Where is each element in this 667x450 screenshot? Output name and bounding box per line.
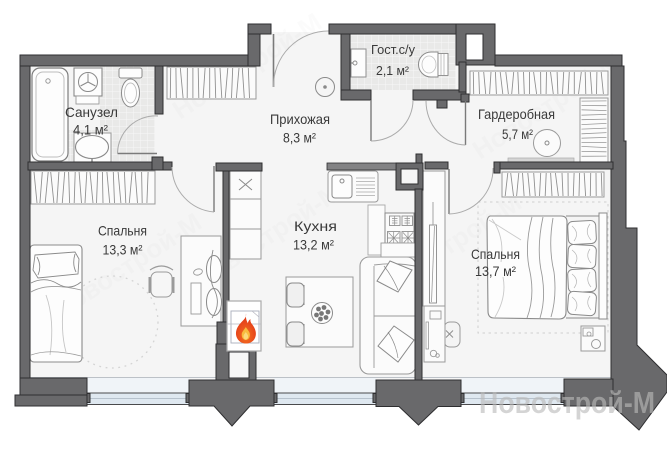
svg-text:Санузел: Санузел	[65, 104, 118, 120]
svg-text:13,3 м²: 13,3 м²	[103, 243, 143, 258]
svg-text:Спальня: Спальня	[98, 223, 147, 239]
svg-text:Гардеробная: Гардеробная	[478, 106, 555, 122]
svg-text:Спальня: Спальня	[471, 246, 520, 262]
svg-text:Новострой-М: Новострой-М	[479, 385, 655, 420]
svg-text:13,7 м²: 13,7 м²	[475, 264, 516, 279]
svg-text:Прихожая: Прихожая	[270, 111, 330, 127]
svg-text:Кухня: Кухня	[294, 218, 337, 234]
svg-text:2,1 м²: 2,1 м²	[376, 63, 410, 78]
svg-text:4,1 м²: 4,1 м²	[73, 123, 108, 138]
svg-text:Гост.с/у: Гост.с/у	[371, 42, 415, 57]
svg-text:13,2 м²: 13,2 м²	[293, 238, 334, 253]
svg-text:8,3 м²: 8,3 м²	[283, 131, 316, 146]
svg-text:5,7 м²: 5,7 м²	[502, 127, 533, 142]
